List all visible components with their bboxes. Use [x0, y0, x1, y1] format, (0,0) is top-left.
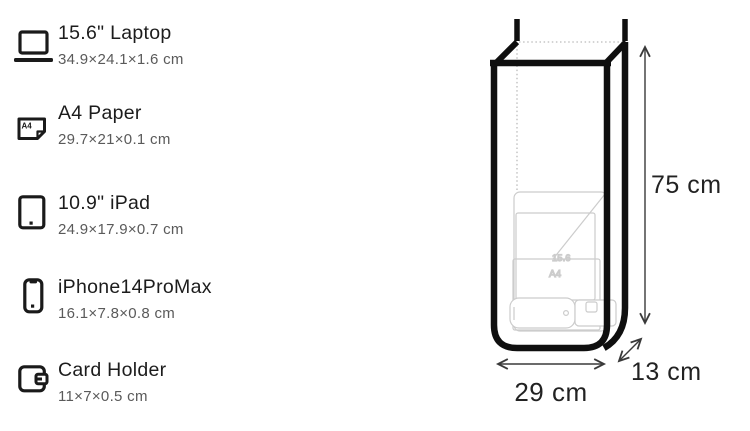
height-dimension-label: 75 cm	[651, 171, 722, 200]
iphone-outline	[510, 298, 575, 328]
laptop-diagonal-label: 15.6	[552, 253, 571, 264]
items-inside-bag: 15.6 A4	[510, 192, 616, 331]
depth-dimension-label: 13 cm	[631, 358, 702, 387]
paper-label: A4	[549, 269, 562, 280]
width-dimension-label: 29 cm	[493, 377, 609, 408]
card-holder-tab	[586, 302, 597, 312]
